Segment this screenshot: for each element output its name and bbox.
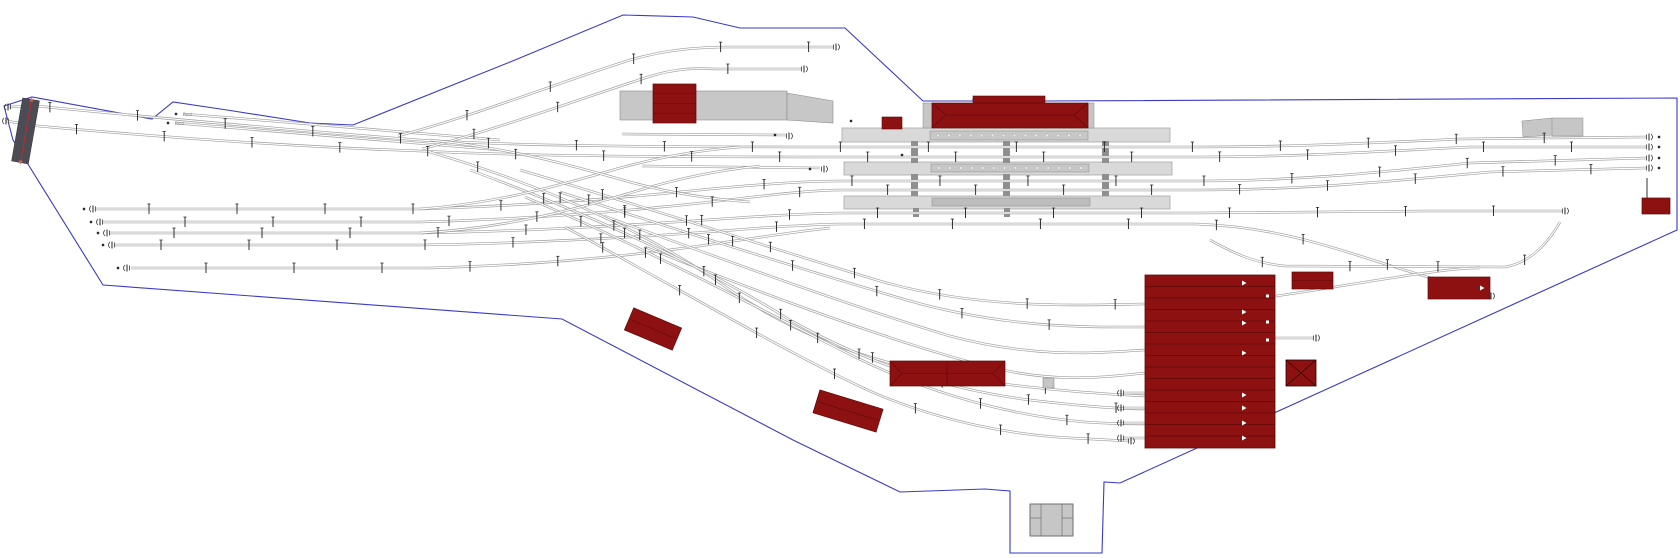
station-building[interactable] — [932, 103, 1088, 128]
canopy-column — [1014, 167, 1017, 170]
end-marker-dot — [102, 244, 104, 246]
end-marker-dot — [97, 232, 99, 234]
buffer-stop — [1314, 335, 1320, 342]
side-ramp-b[interactable] — [1552, 118, 1583, 136]
end-marker-dot — [850, 120, 852, 122]
canopy-column — [1003, 167, 1006, 170]
long-hip-shed[interactable] — [890, 361, 1005, 386]
canopy-column — [1013, 134, 1016, 137]
track-mid-stub-1[interactable] — [622, 134, 786, 135]
buffer-stop — [109, 242, 115, 249]
end-marker-dot — [809, 168, 811, 170]
track-plan-canvas[interactable]: RestRest — [0, 0, 1680, 558]
plan-svg: RestRest — [0, 0, 1680, 558]
canopy-column — [949, 167, 952, 170]
small-gray-hut[interactable] — [1043, 378, 1054, 388]
layer-boundary — [4, 15, 1677, 553]
tilted-shed-1[interactable] — [624, 308, 681, 350]
buffer-stop — [90, 206, 96, 213]
track-yard-track-4[interactable] — [115, 224, 1488, 295]
canopy-column — [992, 167, 995, 170]
buffer-stop — [97, 219, 103, 226]
canopy-column — [1069, 167, 1072, 170]
end-marker-dot — [90, 221, 92, 223]
end-marker-dot — [1658, 136, 1660, 138]
canopy-column — [1035, 134, 1038, 137]
end-marker-dot — [175, 113, 177, 115]
track-label: Rest — [175, 121, 185, 127]
canopy-column — [1058, 167, 1061, 170]
canopy-column — [960, 167, 963, 170]
track-core — [430, 152, 1145, 396]
canopy-column — [1047, 167, 1050, 170]
station-wing-right — [1088, 103, 1094, 128]
canopy-column — [1068, 134, 1071, 137]
buffer-stop — [802, 66, 808, 73]
end-marker-dot — [774, 134, 776, 136]
loading-dock-ramp — [787, 93, 833, 123]
buffer-stop — [1647, 144, 1653, 151]
canopy-column — [1046, 134, 1049, 137]
buffer-stop — [822, 166, 828, 173]
canopy-column — [1002, 134, 1005, 137]
canopy-column — [969, 134, 972, 137]
buffer-stop — [787, 133, 793, 140]
platform-connector — [1102, 141, 1109, 163]
canopy-1 — [930, 131, 1088, 140]
buffer-stop — [104, 230, 110, 237]
canopy-3 — [932, 198, 1090, 206]
red-shed-2[interactable] — [1428, 277, 1490, 299]
canopy-column — [1057, 134, 1060, 137]
end-marker-dot — [1658, 167, 1660, 169]
track-south-curve-1[interactable] — [430, 152, 1145, 396]
station-annex[interactable] — [882, 117, 902, 129]
stall-marker — [1266, 339, 1269, 342]
canopy-column — [937, 134, 940, 137]
end-marker-dot — [117, 267, 119, 269]
track-mid-stub-2[interactable] — [642, 166, 820, 168]
platform-connector — [1102, 174, 1109, 196]
canopy-column — [1024, 134, 1027, 137]
canopy-column — [980, 134, 983, 137]
canopy-column — [1036, 167, 1039, 170]
buffer-stop — [1563, 208, 1569, 215]
locomotive-depot[interactable] — [1145, 275, 1275, 448]
goods-shed[interactable] — [653, 84, 696, 123]
end-marker-dot — [83, 208, 85, 210]
track-label: Rest — [183, 112, 193, 118]
canopy-column — [938, 167, 941, 170]
station-building-clerestory — [973, 96, 1045, 103]
canopy-column — [1079, 134, 1082, 137]
stall-marker — [1266, 321, 1269, 324]
bottom-gray-building[interactable] — [1030, 504, 1073, 536]
station-wing-left — [923, 103, 932, 128]
buffer-stop — [1647, 155, 1653, 162]
stall-marker — [1266, 295, 1269, 298]
buffer-stop — [834, 44, 840, 51]
far-right-shed[interactable] — [1642, 178, 1670, 214]
canopy-2 — [931, 164, 1089, 172]
canopy-column — [1025, 167, 1028, 170]
canopy-column — [948, 134, 951, 137]
platform-connector — [1003, 174, 1010, 196]
end-marker-dot — [1658, 146, 1660, 148]
x-roof-building[interactable] — [1286, 360, 1316, 386]
end-marker-dot — [1658, 157, 1660, 159]
end-marker-dot — [167, 122, 169, 124]
tilted-shed-2[interactable] — [813, 390, 883, 432]
canopy-column — [1080, 167, 1083, 170]
buffer-stop — [1647, 165, 1653, 172]
buffer-stop — [124, 265, 130, 272]
side-ramp-a[interactable] — [1522, 118, 1553, 137]
loading-dock[interactable] — [620, 91, 787, 120]
canopy-column — [981, 167, 984, 170]
layer-platforms — [620, 91, 1583, 217]
platform-connector — [911, 174, 918, 196]
canopy-column — [970, 167, 973, 170]
layout-boundary — [4, 15, 1677, 553]
track-core — [115, 224, 1488, 295]
buffer-stop — [1647, 134, 1653, 141]
canopy-column — [959, 134, 962, 137]
platform-connector — [911, 141, 918, 163]
end-marker-dot — [901, 154, 903, 156]
canopy-column — [991, 134, 994, 137]
platform-connector — [1003, 141, 1010, 163]
red-shed-1[interactable] — [1292, 272, 1333, 289]
